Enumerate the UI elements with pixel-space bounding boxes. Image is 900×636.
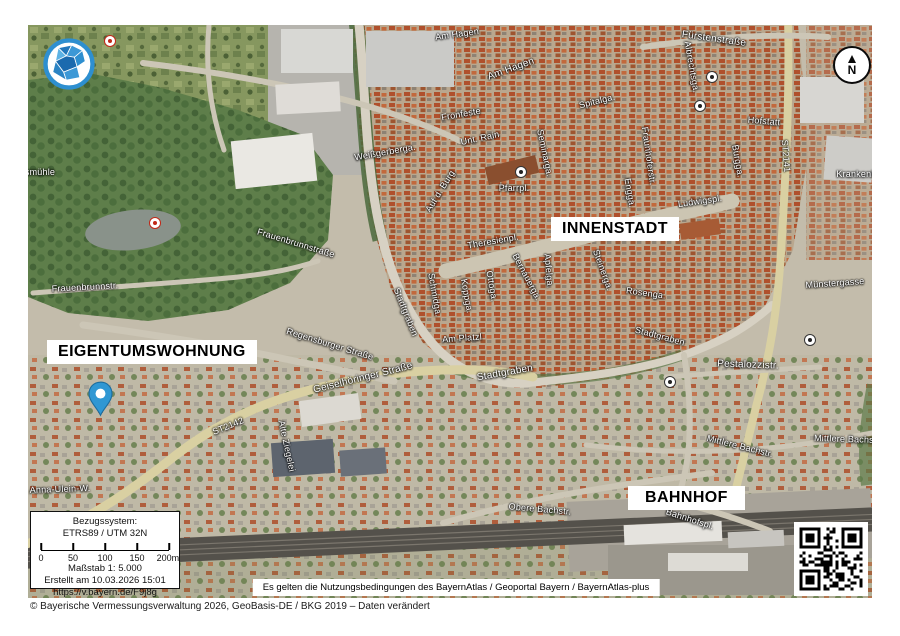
share-url: https://v.bayern.de/F9j8g bbox=[31, 587, 179, 598]
created-text: Erstellt am 10.03.2026 15:01 bbox=[31, 575, 179, 587]
map-sheet: Am HagenAm HagenFronfesteUnt. RainWeißge… bbox=[0, 0, 900, 636]
crs-value: ETRS89 / UTM 32N bbox=[31, 528, 179, 540]
crs-label: Bezugssystem: bbox=[31, 516, 179, 528]
label-eigentumswohnung: EIGENTUMSWOHNUNG bbox=[47, 340, 257, 364]
scale-text: Maßstab 1: 5.000 bbox=[31, 563, 179, 575]
location-pin-icon[interactable] bbox=[87, 381, 114, 417]
north-arrow-icon bbox=[848, 55, 856, 63]
bayernatlas-logo bbox=[42, 37, 96, 91]
map-info-box: Bezugssystem: ETRS89 / UTM 32N 050100150… bbox=[30, 511, 180, 589]
label-innenstadt: INNENSTADT bbox=[551, 217, 679, 241]
scale-bar-numbers: 050100150200m bbox=[41, 552, 169, 563]
scale-bar bbox=[41, 543, 169, 551]
north-arrow: N bbox=[833, 46, 871, 84]
north-letter: N bbox=[848, 64, 857, 76]
qr-code bbox=[794, 522, 868, 596]
label-bahnhof: BAHNHOF bbox=[628, 486, 745, 510]
satellite-map[interactable]: Am HagenAm HagenFronfesteUnt. RainWeißge… bbox=[28, 25, 872, 598]
copyright-note: © Bayerische Vermessungsverwaltung 2026,… bbox=[30, 601, 430, 612]
terms-note: Es gelten die Nutzungsbedingungen des Ba… bbox=[253, 579, 660, 596]
